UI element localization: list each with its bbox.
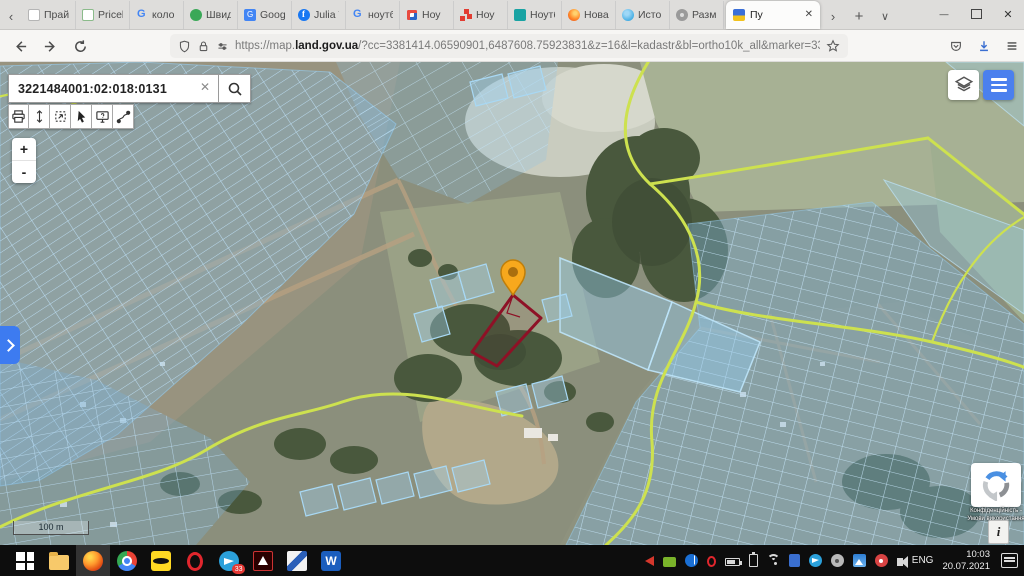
measure-area-button[interactable]	[50, 104, 71, 129]
window-controls	[928, 0, 1024, 29]
firefox-icon	[83, 551, 103, 571]
defender-icon[interactable]	[875, 554, 888, 567]
map-attribution-button[interactable]	[988, 520, 1009, 544]
print-icon	[11, 109, 26, 124]
zoom-out-button[interactable]: -	[12, 160, 36, 183]
tab-label: Швид	[206, 9, 231, 21]
select-icon	[74, 109, 89, 124]
recaptcha-icon	[980, 469, 1012, 501]
volume-icon[interactable]	[897, 558, 903, 566]
taskbar-chrome-button[interactable]	[110, 545, 144, 576]
tab-11[interactable]: Исто	[616, 1, 670, 29]
measure-distance-icon	[32, 109, 47, 124]
measure-distance-button[interactable]	[29, 104, 50, 129]
opera-mini-icon[interactable]	[707, 556, 716, 567]
blue-circle-favicon	[622, 9, 634, 21]
scroll-tabs-left-icon[interactable]	[0, 3, 22, 29]
left-panel-toggle[interactable]	[0, 326, 20, 364]
tray-date: 20.07.2021	[942, 561, 990, 573]
translate-favicon	[244, 9, 256, 21]
tab-label: Разм	[692, 9, 716, 21]
kompas-icon	[287, 551, 307, 571]
layers-button[interactable]	[948, 70, 979, 100]
teal-badge-favicon	[514, 9, 526, 21]
identify-button[interactable]	[92, 104, 113, 129]
search-icon	[227, 81, 243, 97]
maximize-button[interactable]	[960, 0, 992, 29]
print-button[interactable]	[8, 104, 29, 129]
tab-label: Исто	[638, 9, 661, 21]
clear-search-icon[interactable]	[200, 81, 210, 93]
tab-7[interactable]: Ноу	[400, 1, 454, 29]
device-icon[interactable]	[789, 554, 800, 567]
tab-5[interactable]: Julia V	[292, 1, 346, 29]
route-icon	[116, 109, 131, 124]
sheet-favicon	[82, 9, 94, 21]
search-button[interactable]	[218, 74, 251, 103]
zoom-in-button[interactable]: +	[12, 138, 36, 160]
menu-hamburger-icon[interactable]	[1002, 36, 1022, 56]
permissions-icon[interactable]	[216, 40, 229, 53]
tab-close-button[interactable]	[805, 10, 813, 20]
map-toolbar	[8, 104, 134, 129]
active-tab-label: Пу	[750, 9, 800, 21]
taskbar-acrobat-button[interactable]	[246, 545, 280, 576]
tab-label: Ноутб	[530, 9, 555, 21]
acrobat-icon	[253, 551, 273, 571]
tab-label: Pricelist_M	[98, 9, 123, 21]
taskbar-batman-button[interactable]	[144, 545, 178, 576]
ukraine-trident-favicon	[733, 9, 745, 21]
lock-icon[interactable]	[197, 40, 210, 53]
downloads-icon[interactable]	[974, 36, 994, 56]
bluetooth-icon[interactable]	[685, 554, 698, 567]
screen: ПрайPricelist_MколоШвидGoogJulia VноутбН…	[0, 0, 1024, 576]
usb-icon[interactable]	[749, 554, 758, 567]
tray-time: 10:03	[942, 549, 990, 561]
tab-label: Нова	[584, 9, 609, 21]
doc-favicon	[28, 9, 40, 21]
google-favicon	[136, 9, 148, 21]
tab-6[interactable]: ноутб	[346, 1, 400, 29]
chrome-icon	[117, 551, 137, 571]
clock[interactable]: 10:03 20.07.2021	[942, 549, 990, 573]
photos-icon[interactable]	[853, 554, 866, 567]
telegram-badge: 33	[232, 564, 245, 574]
google-favicon	[352, 9, 364, 21]
minimize-button[interactable]	[928, 0, 960, 29]
measure-area-icon	[53, 109, 68, 124]
taskbar-firefox-button[interactable]	[76, 545, 110, 576]
tab-9[interactable]: Ноутб	[508, 1, 562, 29]
media-icon[interactable]	[645, 556, 654, 566]
start-icon	[16, 552, 34, 570]
new-tab-button[interactable]	[846, 3, 872, 29]
tab-2[interactable]: коло	[130, 1, 184, 29]
tab-10[interactable]: Нова	[562, 1, 616, 29]
taskbar-explorer-button[interactable]	[42, 545, 76, 576]
tab-1[interactable]: Pricelist_M	[76, 1, 130, 29]
language-indicator[interactable]: ENG	[912, 555, 934, 566]
wifi-icon[interactable]	[767, 554, 780, 567]
nvidia-icon[interactable]	[663, 557, 676, 567]
tab-label: Goog	[260, 9, 285, 21]
tab-label: Прай	[44, 9, 69, 21]
cadastral-search	[8, 74, 251, 103]
batman-icon	[151, 551, 171, 571]
opera-icon	[187, 552, 203, 571]
recaptcha-badge[interactable]	[971, 463, 1021, 507]
orange-circle-favicon	[568, 9, 580, 21]
taskbar-opera-button[interactable]	[178, 545, 212, 576]
moyo-favicon	[406, 9, 418, 21]
back-button[interactable]	[10, 36, 30, 56]
cadastral-number-input[interactable]	[8, 74, 218, 103]
taskbar-kompas-button[interactable]	[280, 545, 314, 576]
telegram-tray-icon[interactable]	[809, 554, 822, 567]
reload-button[interactable]	[70, 36, 90, 56]
url-text: https://map.land.gov.ua/?cc=3381414.0659…	[235, 40, 820, 52]
url-bar[interactable]: https://map.land.gov.ua/?cc=3381414.0659…	[170, 34, 848, 58]
scale-bar: 100 m	[13, 521, 89, 535]
taskbar-word-button[interactable]	[314, 545, 348, 576]
disc-icon[interactable]	[831, 554, 844, 567]
red-squares-favicon	[460, 9, 472, 21]
taskbar-apps: 33	[0, 545, 348, 576]
route-button[interactable]	[113, 104, 134, 129]
satellite-map[interactable]	[0, 62, 1024, 545]
tab-12[interactable]: Разм	[670, 1, 724, 29]
map-menu-button[interactable]	[983, 70, 1014, 100]
battery-icon[interactable]	[725, 558, 740, 566]
tab-label: ноутб	[368, 9, 393, 21]
tab-label: Ноу	[422, 9, 441, 21]
tab-0[interactable]: Прай	[22, 1, 76, 29]
background-tabs: ПрайPricelist_MколоШвидGoogJulia VноутбН…	[22, 0, 724, 29]
windows-taskbar: 33 ENG 10:03 20.07.2021	[0, 545, 1024, 576]
taskbar-start-button[interactable]	[8, 545, 42, 576]
identify-icon	[95, 109, 110, 124]
select-button[interactable]	[71, 104, 92, 129]
tab-4[interactable]: Goog	[238, 1, 292, 29]
pocket-icon[interactable]	[946, 36, 966, 56]
word-icon	[321, 551, 341, 571]
tab-8[interactable]: Ноу	[454, 1, 508, 29]
tracking-shield-icon[interactable]	[178, 40, 191, 53]
taskbar-telegram-button[interactable]: 33	[212, 545, 246, 576]
tab-3[interactable]: Швид	[184, 1, 238, 29]
tab-label: Ноу	[476, 9, 495, 21]
close-window-button[interactable]	[992, 0, 1024, 29]
gear-favicon	[676, 9, 688, 21]
browser-navbar: https://map.land.gov.ua/?cc=3381414.0659…	[0, 30, 1024, 62]
scroll-tabs-right-icon[interactable]	[820, 3, 846, 29]
green-badge-favicon	[190, 9, 202, 21]
tab-label: коло	[152, 9, 174, 21]
browser-tabstrip: ПрайPricelist_MколоШвидGoogJulia VноутбН…	[0, 0, 1024, 30]
map-viewport[interactable]: + - 100 m Конфіденційність - Умови викор…	[0, 62, 1024, 545]
explorer-icon	[49, 555, 69, 570]
bookmark-star-icon[interactable]	[826, 39, 840, 53]
system-tray: ENG 10:03 20.07.2021	[645, 545, 1024, 576]
zoom-control: + -	[12, 138, 36, 183]
notifications-icon[interactable]	[1001, 553, 1018, 568]
forward-button[interactable]	[40, 36, 60, 56]
facebook-favicon	[298, 9, 310, 21]
tab-label: Julia V	[314, 9, 339, 21]
layers-icon	[954, 75, 974, 95]
tab-active[interactable]: Пу	[726, 1, 820, 29]
list-tabs-icon[interactable]	[872, 3, 898, 29]
